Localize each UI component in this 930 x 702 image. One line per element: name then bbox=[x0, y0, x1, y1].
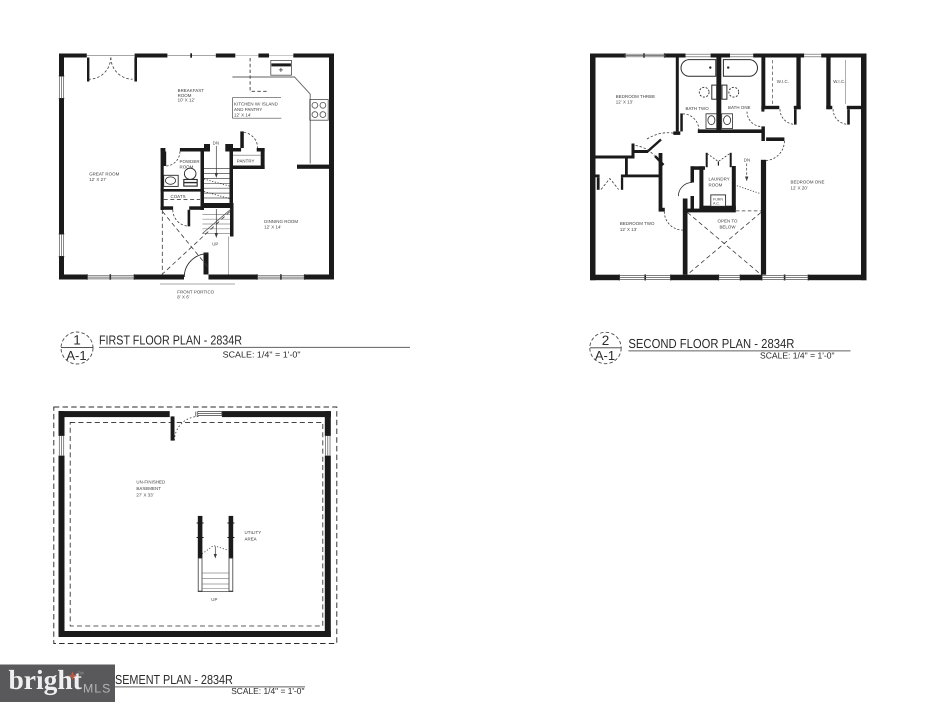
svg-text:KITCHEN W/ ISLAND: KITCHEN W/ ISLAND bbox=[234, 102, 278, 107]
svg-text:COATS: COATS bbox=[171, 194, 186, 199]
svg-text:PANTRY: PANTRY bbox=[237, 159, 255, 164]
svg-text:DN: DN bbox=[744, 158, 750, 163]
svg-text:LAUNDRY: LAUNDRY bbox=[709, 177, 730, 182]
svg-text:12' X 14': 12' X 14' bbox=[264, 224, 281, 229]
svg-text:27' X 33': 27' X 33' bbox=[136, 493, 153, 498]
svg-text:12' X 13': 12' X 13' bbox=[620, 227, 637, 232]
svg-text:10' X 12': 10' X 12' bbox=[178, 98, 195, 103]
svg-text:A-1: A-1 bbox=[66, 348, 86, 363]
svg-text:AND PANTRY: AND PANTRY bbox=[234, 107, 262, 112]
svg-text:W.I.C.: W.I.C. bbox=[777, 79, 789, 84]
svg-text:12' X 14': 12' X 14' bbox=[234, 113, 251, 118]
svg-text:GREAT ROOM: GREAT ROOM bbox=[89, 171, 119, 176]
svg-text:POWDER: POWDER bbox=[180, 159, 200, 164]
svg-text:A-1: A-1 bbox=[595, 348, 615, 363]
svg-text:UP: UP bbox=[212, 242, 218, 247]
svg-text:DN: DN bbox=[213, 141, 219, 146]
svg-text:ROOM: ROOM bbox=[709, 183, 723, 188]
svg-text:TM: TM bbox=[78, 671, 84, 676]
svg-text:BEDROOM ONE: BEDROOM ONE bbox=[791, 180, 825, 185]
svg-text:ROOM: ROOM bbox=[180, 164, 194, 169]
svg-text:SECOND FLOOR PLAN - 2834R: SECOND FLOOR PLAN - 2834R bbox=[628, 336, 794, 351]
svg-text:BELOW: BELOW bbox=[719, 224, 736, 229]
svg-text:UP: UP bbox=[211, 597, 217, 602]
svg-text:8' X 6': 8' X 6' bbox=[177, 295, 189, 300]
svg-text:OPEN TO: OPEN TO bbox=[718, 218, 738, 223]
svg-text:DINNING ROOM: DINNING ROOM bbox=[264, 219, 298, 224]
svg-text:12' X 20': 12' X 20' bbox=[791, 186, 808, 191]
svg-text:bright: bright bbox=[9, 664, 83, 696]
svg-text:BATH ONE: BATH ONE bbox=[728, 105, 751, 110]
svg-text:UTILITY: UTILITY bbox=[245, 530, 262, 535]
svg-text:W.I.C.: W.I.C. bbox=[833, 79, 845, 84]
svg-text:BATH TWO: BATH TWO bbox=[686, 106, 710, 111]
svg-text:12' X 13': 12' X 13' bbox=[616, 100, 633, 105]
svg-text:12' X 27': 12' X 27' bbox=[89, 177, 106, 182]
svg-text:BEDROOM THREE: BEDROOM THREE bbox=[616, 94, 655, 99]
svg-text:AREA: AREA bbox=[245, 536, 257, 541]
svg-text:1: 1 bbox=[73, 333, 81, 348]
svg-text:SCALE: 1/4" = 1'-0": SCALE: 1/4" = 1'-0" bbox=[760, 350, 835, 360]
svg-text:SCALE: 1/4" = 1'-0": SCALE: 1/4" = 1'-0" bbox=[223, 349, 301, 359]
svg-text:FIRST FLOOR PLAN - 2834R: FIRST FLOOR PLAN - 2834R bbox=[99, 332, 242, 347]
svg-text:BASEMENT PLAN - 2834R: BASEMENT PLAN - 2834R bbox=[101, 672, 233, 687]
svg-text:2: 2 bbox=[602, 333, 610, 348]
svg-text:BEDROOM TWO: BEDROOM TWO bbox=[620, 221, 655, 226]
svg-text:MLS: MLS bbox=[83, 681, 111, 695]
svg-text:BASEMENT: BASEMENT bbox=[136, 486, 161, 491]
svg-text:SCALE: 1/4" = 1'-0": SCALE: 1/4" = 1'-0" bbox=[231, 686, 304, 696]
svg-text:A.C.: A.C. bbox=[713, 202, 720, 206]
svg-text:UN-FINISHED: UN-FINISHED bbox=[136, 480, 165, 485]
